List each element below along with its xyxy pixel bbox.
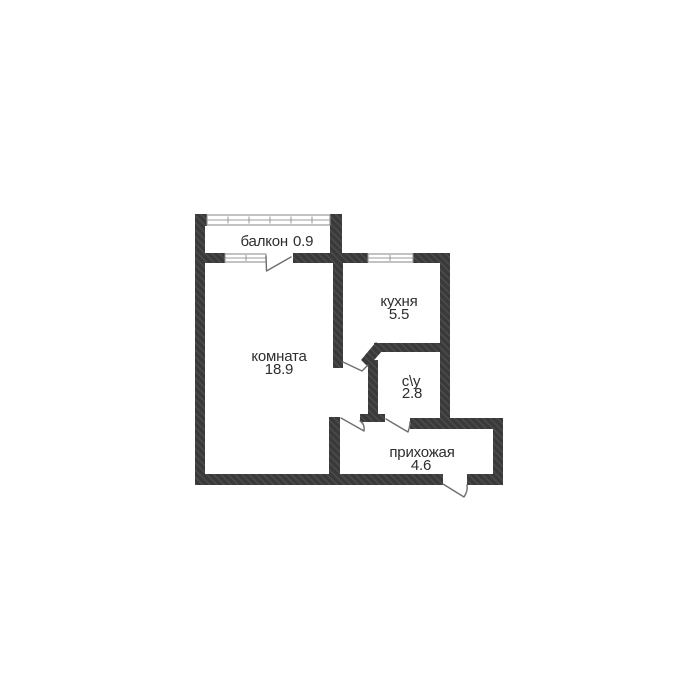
floor-plan-drawing: балкон 0.9 кухня 5.5 комната 18.9 с\у 2.… — [0, 0, 700, 700]
floor-plan-canvas: балкон 0.9 кухня 5.5 комната 18.9 с\у 2.… — [0, 0, 700, 700]
wall-balcony-right — [330, 214, 342, 263]
door-kitchen-swing — [343, 362, 368, 371]
wall-bathroom-left-foot — [360, 414, 385, 422]
wall-balcony-left-stub — [195, 214, 207, 226]
door-bathroom-swing — [386, 419, 410, 432]
label-hallway-area: 4.6 — [411, 457, 431, 474]
wall-room-kitchen — [333, 263, 343, 368]
window-kitchen — [368, 254, 413, 262]
window-balcony-glazing — [207, 215, 330, 225]
label-kitchen-area: 5.5 — [389, 306, 409, 323]
label-bathroom-area: 2.8 — [402, 385, 422, 402]
wall-top-segment-right — [413, 253, 450, 263]
wall-bathroom-left — [368, 360, 378, 416]
wall-bathroom-top — [374, 343, 450, 352]
window-room-balcony — [225, 254, 266, 262]
label-living-area: 18.9 — [265, 361, 293, 378]
label-balcony-area: 0.9 — [293, 233, 313, 250]
label-balcony-name: балкон — [241, 233, 289, 250]
wall-hallway-top — [410, 418, 503, 429]
room-labels: балкон 0.9 кухня 5.5 комната 18.9 с\у 2.… — [241, 233, 455, 474]
wall-room-hallway-stub — [329, 417, 340, 474]
wall-outer-bottom-left — [195, 474, 443, 485]
door-balcony-swing — [266, 256, 291, 271]
door-entrance-swing — [443, 484, 467, 497]
wall-kitchen-right — [440, 253, 450, 429]
wall-top-segment-left — [195, 253, 225, 263]
